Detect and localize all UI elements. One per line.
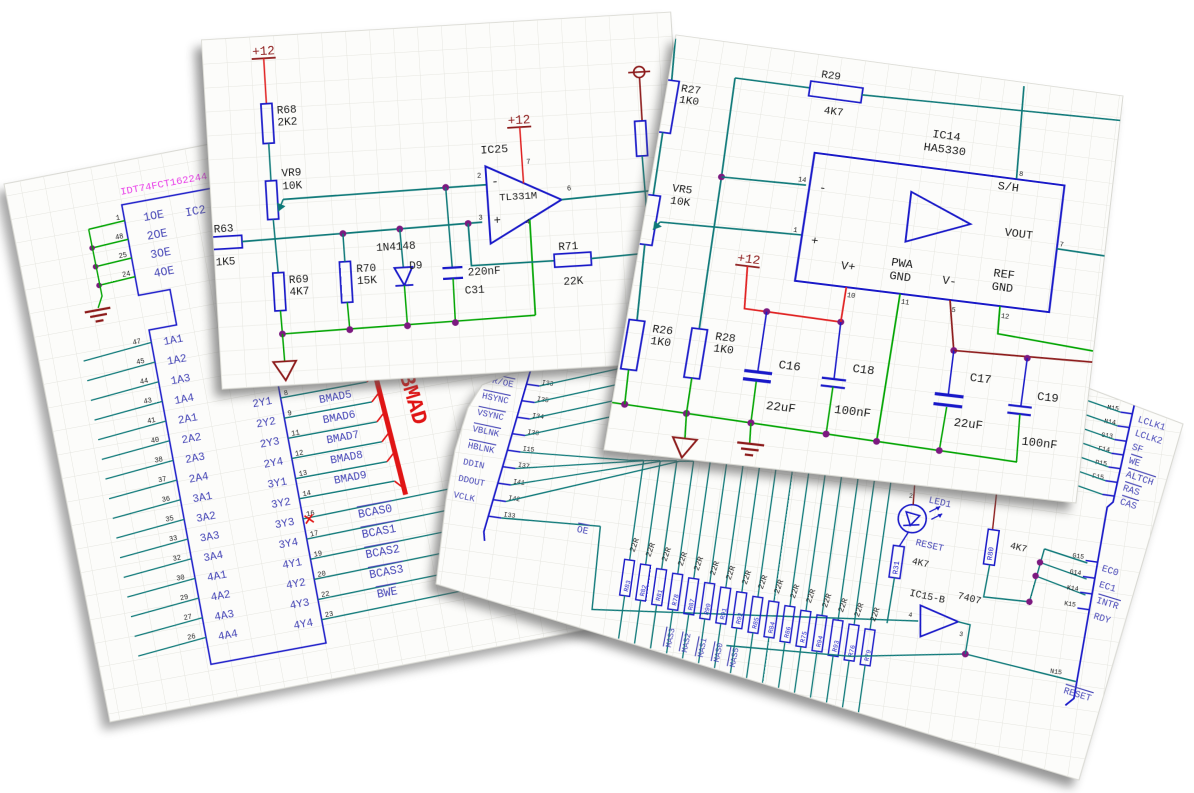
svg-text:C19: C19 [1036, 390, 1059, 406]
svg-text:GND: GND [888, 269, 911, 285]
svg-text:1K0: 1K0 [678, 95, 700, 109]
svg-text:S/H: S/H [997, 180, 1020, 196]
svg-text:7: 7 [1059, 242, 1064, 250]
svg-text:10K: 10K [669, 196, 691, 210]
svg-text:C16: C16 [778, 358, 802, 374]
svg-text:C18: C18 [852, 362, 876, 378]
svg-text:C17: C17 [969, 371, 992, 387]
svg-text:R29: R29 [820, 70, 841, 84]
svg-text:10: 10 [846, 292, 856, 301]
svg-text:4K7: 4K7 [823, 106, 844, 120]
svg-text:1K0: 1K0 [649, 336, 671, 350]
svg-text:12: 12 [1000, 313, 1009, 322]
svg-text:V+: V+ [840, 259, 856, 274]
svg-text:1K0: 1K0 [712, 343, 734, 357]
svg-text:14: 14 [797, 176, 807, 185]
svg-text:11: 11 [900, 299, 909, 308]
svg-text:V-: V- [941, 274, 957, 289]
svg-text:GND: GND [991, 280, 1014, 296]
